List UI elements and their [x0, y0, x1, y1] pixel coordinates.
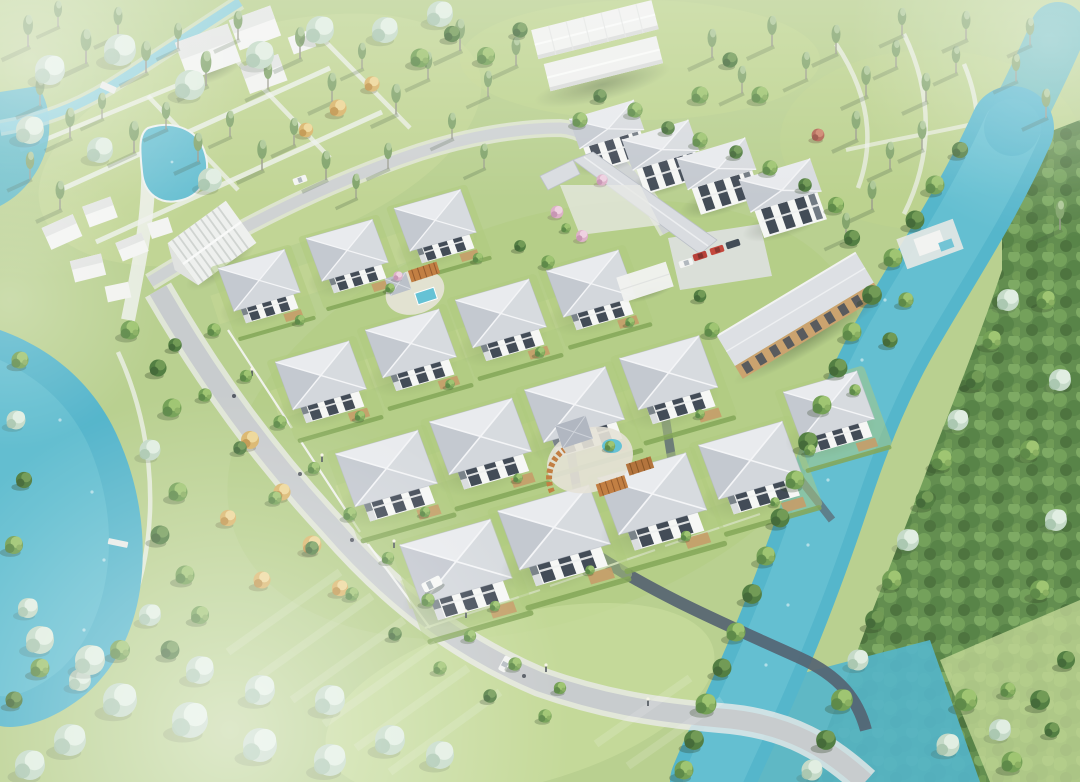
- rendering-canvas: Aerial architectural rendering of a resi…: [0, 0, 1080, 782]
- haze-layer: [0, 0, 1080, 782]
- aerial-rendering: Aerial architectural rendering of a resi…: [0, 0, 1080, 782]
- overall-veil: [0, 0, 1080, 782]
